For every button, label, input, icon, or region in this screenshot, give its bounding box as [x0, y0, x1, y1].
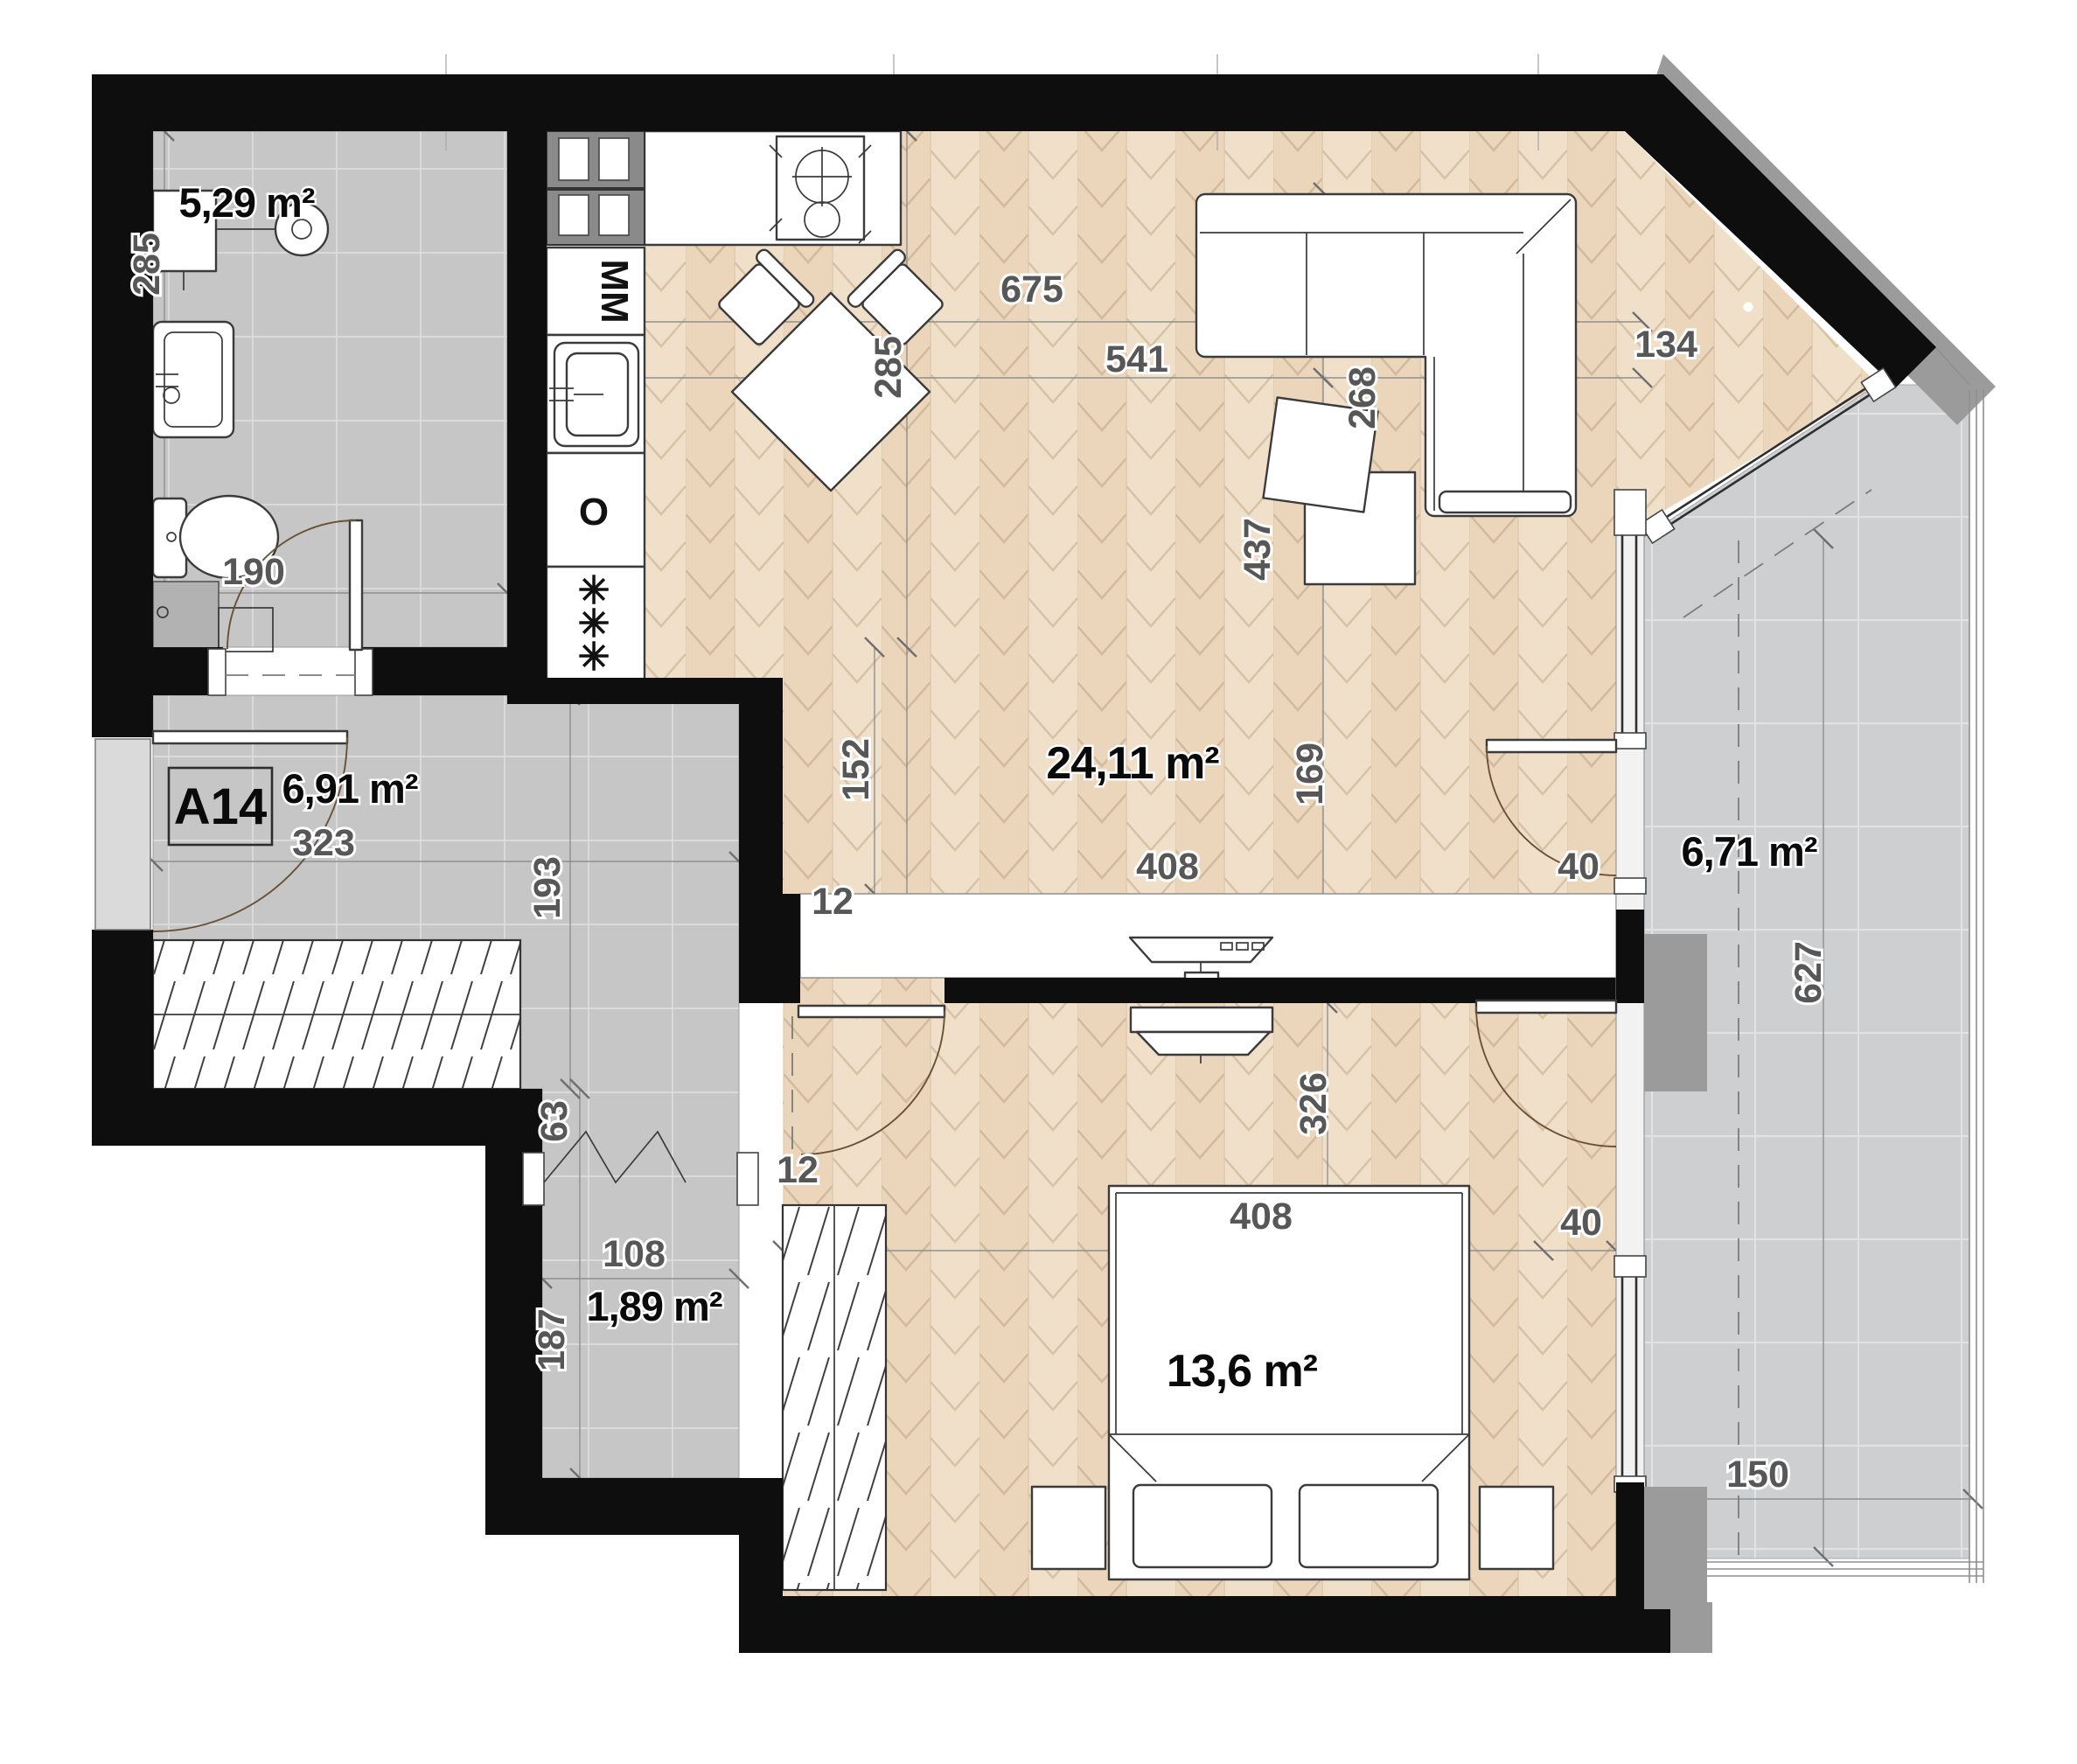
dim-closet-height: 187 [531, 1308, 573, 1371]
dim-liv-268: 268 [1342, 366, 1384, 429]
dim-liv-169: 169 [1289, 743, 1331, 805]
dim-liv-408: 408 [1136, 846, 1199, 888]
dim-hall-width: 323 [292, 822, 355, 864]
dishwasher-label: ✳✳✳ [578, 569, 610, 679]
bathroom-area-label: 5,29 m² [179, 179, 315, 226]
dim-liv-285: 285 [868, 336, 910, 399]
dim-liv-437: 437 [1237, 518, 1279, 581]
floor-plan-drawing: MM O ✳✳✳ [0, 0, 2077, 1764]
dim-liv-152: 152 [835, 738, 877, 801]
kitchen-sink [547, 335, 645, 453]
dim-hall-height: 193 [526, 856, 568, 919]
hallway-wardrobe [153, 940, 520, 1089]
balcony-area-label: 6,71 m² [1682, 828, 1817, 875]
unit-label: A14 [174, 778, 267, 835]
nightstand-right [1480, 1487, 1553, 1569]
nightstand-left [1032, 1487, 1105, 1569]
dim-bath-height: 285 [126, 233, 168, 296]
living-area-label: 24,11 m² [1046, 738, 1219, 789]
dim-bed-408: 408 [1230, 1196, 1293, 1238]
dim-niche: 63 [533, 1100, 575, 1142]
bedroom-wardrobe [783, 1205, 886, 1590]
closet-area-label: 1,89 m² [587, 1283, 722, 1329]
dim-closet-width: 108 [603, 1233, 666, 1275]
floor-plan-page: MM O ✳✳✳ [0, 0, 2077, 1764]
dim-liv-40: 40 [1558, 846, 1600, 888]
hallway-area-label: 6,91 m² [282, 765, 418, 812]
dim-bed-326: 326 [1293, 1072, 1335, 1135]
dim-balcony-width: 150 [1726, 1454, 1789, 1496]
dim-liv-675: 675 [1000, 268, 1063, 310]
dim-balcony-length: 627 [1788, 941, 1830, 1004]
media-console [800, 894, 1616, 980]
dim-liv-134: 134 [1634, 324, 1697, 366]
washing-machine-label: MM [593, 259, 636, 323]
bedroom-area-label: 13,6 m² [1167, 1346, 1318, 1397]
stove [770, 136, 871, 243]
fridge [547, 131, 645, 245]
bathroom-sink [153, 322, 233, 437]
dim-media-gap: 12 [812, 881, 854, 923]
dim-liv-541: 541 [1105, 338, 1168, 380]
dim-bath-door: 190 [222, 551, 285, 593]
oven-label: O [579, 491, 609, 533]
dim-bed-gap: 12 [777, 1149, 819, 1191]
dim-bed-40: 40 [1560, 1202, 1602, 1244]
